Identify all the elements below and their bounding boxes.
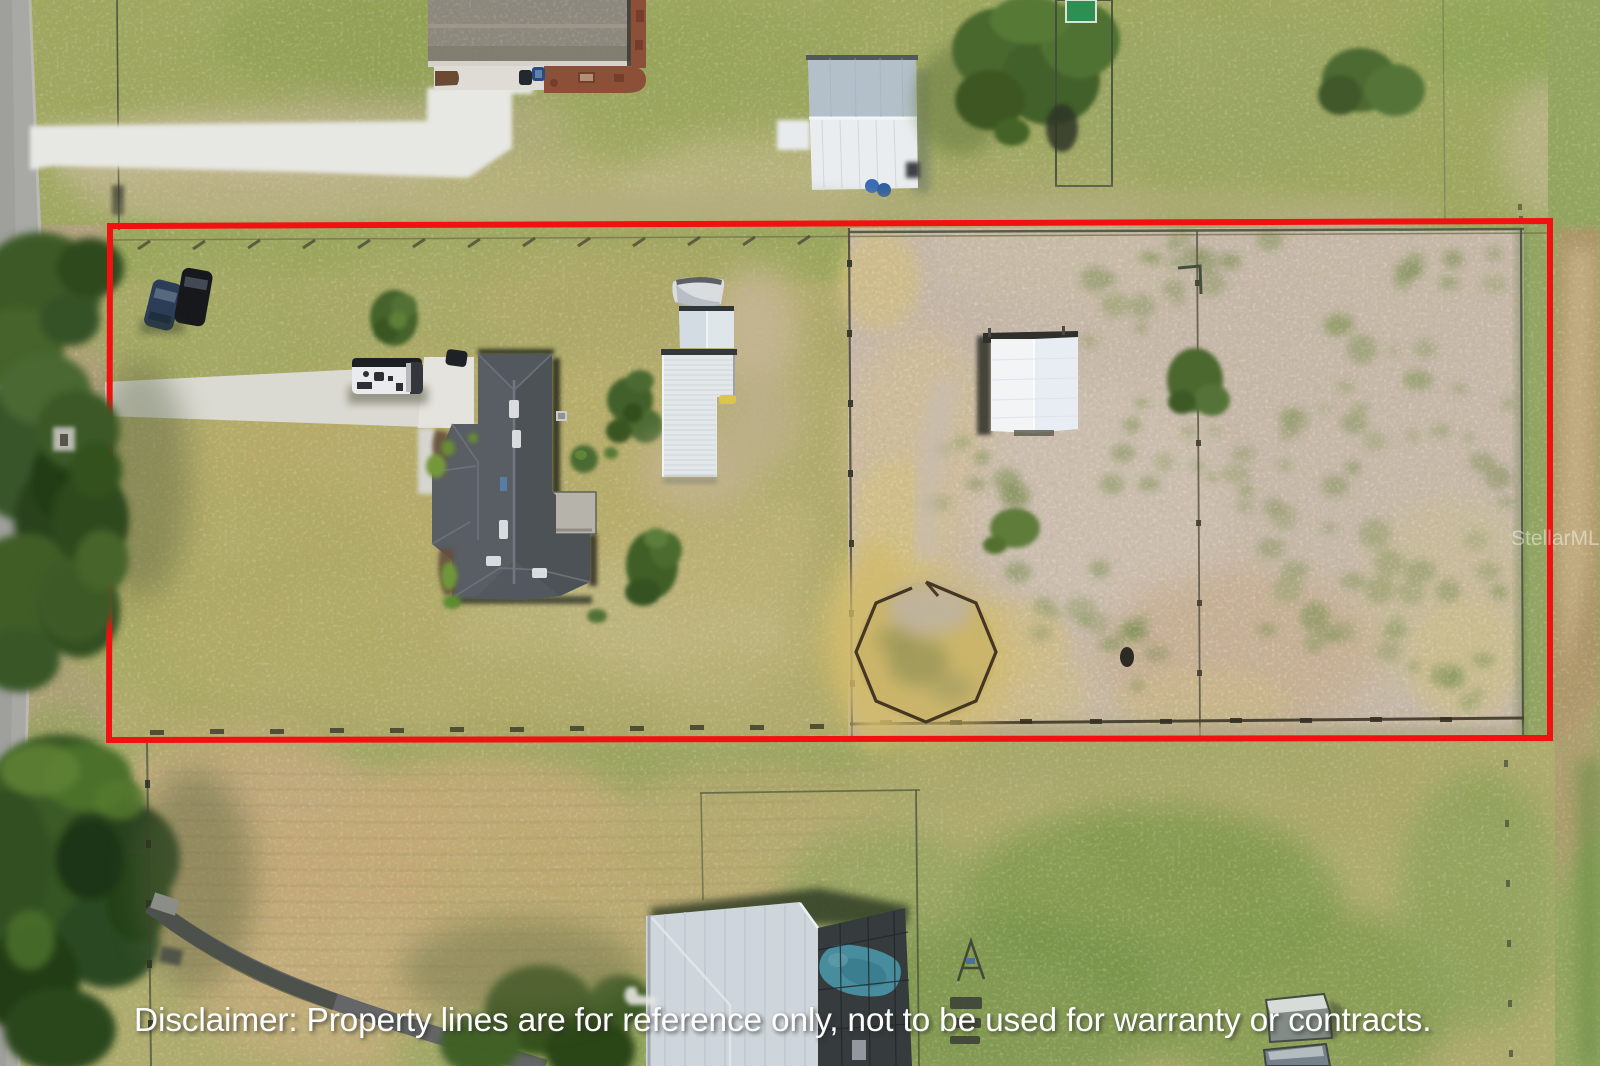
svg-text:StellarMLS: StellarMLS: [1511, 527, 1600, 550]
svg-text:Disclaimer: Property lines are: Disclaimer: Property lines are for refer…: [134, 1002, 1431, 1039]
